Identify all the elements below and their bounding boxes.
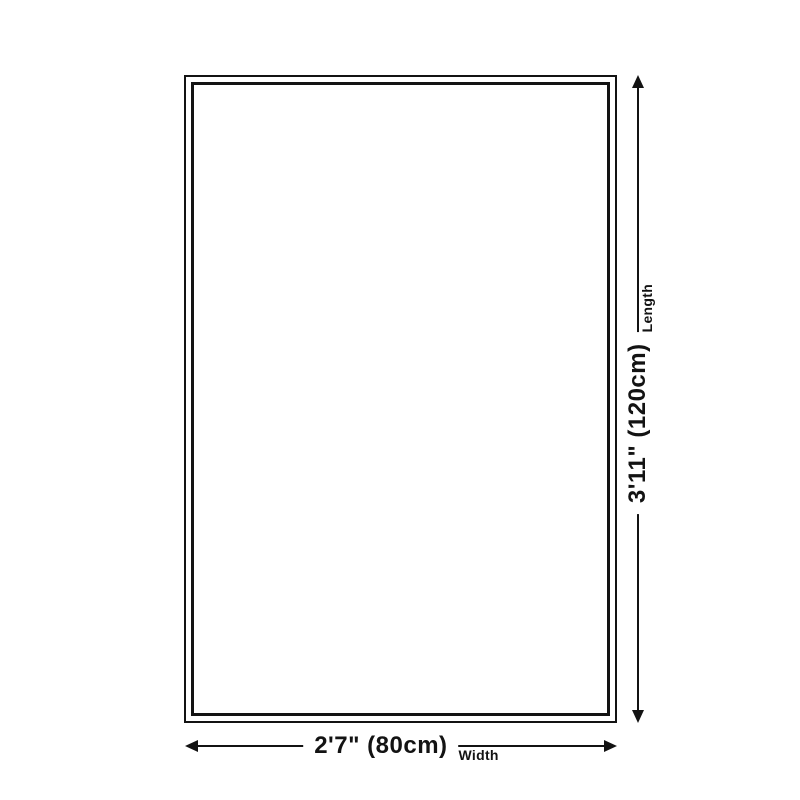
rug-inner-border	[191, 82, 610, 716]
arrow-right-icon	[604, 740, 617, 752]
length-value: 3'11" (120cm)	[623, 332, 653, 514]
width-caption: Width	[459, 747, 499, 763]
length-label-group: 3'11" (120cm) Length	[623, 284, 653, 514]
length-dimension: 3'11" (120cm) Length	[630, 75, 646, 723]
rug-outline	[184, 75, 617, 723]
arrow-left-icon	[185, 740, 198, 752]
width-value: 2'7" (80cm)	[303, 731, 458, 761]
arrow-up-icon	[632, 75, 644, 88]
width-dimension: 2'7" (80cm) Width	[185, 738, 617, 754]
length-caption: Length	[639, 284, 655, 332]
rug-dimension-diagram: 3'11" (120cm) Length 2'7" (80cm) Width	[0, 0, 800, 800]
width-label-group: 2'7" (80cm) Width	[303, 731, 499, 761]
arrow-down-icon	[632, 710, 644, 723]
